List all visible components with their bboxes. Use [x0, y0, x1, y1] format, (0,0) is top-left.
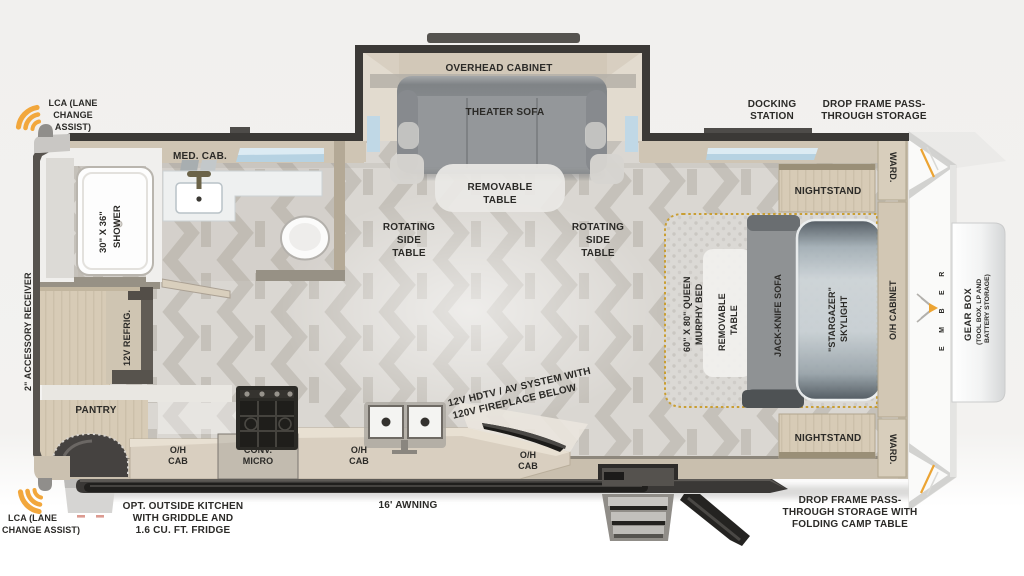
svg-text:GEAR BOX: GEAR BOX: [963, 288, 974, 341]
svg-text:TABLE: TABLE: [483, 195, 517, 206]
svg-text:THROUGH STORAGE WITH: THROUGH STORAGE WITH: [783, 507, 918, 518]
svg-text:60" X 80" QUEEN: 60" X 80" QUEEN: [682, 276, 692, 352]
svg-text:MURPHY BED: MURPHY BED: [694, 283, 704, 345]
svg-text:(TOOL BOX, LP AND: (TOOL BOX, LP AND: [976, 279, 983, 345]
svg-text:CAB: CAB: [168, 456, 188, 466]
svg-text:LCA (LANE: LCA (LANE: [48, 98, 97, 108]
svg-text:"STARGAZER": "STARGAZER": [827, 287, 837, 352]
svg-text:DOCKING: DOCKING: [748, 99, 797, 110]
svg-text:O/H: O/H: [170, 445, 186, 455]
svg-text:CHANGE ASSIST): CHANGE ASSIST): [2, 525, 80, 535]
svg-text:O/H CABINET: O/H CABINET: [888, 280, 898, 340]
svg-text:STATION: STATION: [750, 111, 794, 122]
svg-text:12V REFRIG.: 12V REFRIG.: [122, 310, 132, 366]
svg-text:SIDE: SIDE: [397, 235, 421, 246]
svg-text:O/H: O/H: [520, 450, 536, 460]
svg-text:O/H: O/H: [351, 445, 367, 455]
svg-text:DROP FRAME PASS-: DROP FRAME PASS-: [823, 99, 926, 110]
svg-text:OPT. OUTSIDE KITCHEN: OPT. OUTSIDE KITCHEN: [123, 501, 244, 512]
svg-text:WARD.: WARD.: [888, 152, 898, 183]
svg-text:REMOVABLE: REMOVABLE: [717, 293, 727, 351]
svg-text:WITH GRIDDLE AND: WITH GRIDDLE AND: [133, 513, 234, 524]
svg-text:WARD.: WARD.: [888, 434, 898, 465]
svg-text:16' AWNING: 16' AWNING: [378, 500, 437, 511]
svg-text:SHOWER: SHOWER: [112, 205, 123, 248]
svg-text:1.6 CU. FT. FRIDGE: 1.6 CU. FT. FRIDGE: [136, 525, 231, 536]
svg-text:REMOVABLE: REMOVABLE: [468, 182, 533, 193]
svg-text:BATTERY STORAGE): BATTERY STORAGE): [984, 274, 991, 343]
svg-text:ASSIST): ASSIST): [55, 122, 91, 132]
svg-text:SIDE: SIDE: [586, 235, 610, 246]
svg-text:CHANGE: CHANGE: [53, 110, 93, 120]
svg-text:CAB: CAB: [518, 461, 538, 471]
svg-text:TABLE: TABLE: [392, 248, 426, 259]
svg-text:LCA (LANE: LCA (LANE: [8, 513, 57, 523]
svg-text:FOLDING CAMP TABLE: FOLDING CAMP TABLE: [792, 519, 908, 530]
svg-text:THEATER SOFA: THEATER SOFA: [466, 107, 545, 118]
svg-text:ROTATING: ROTATING: [383, 222, 435, 233]
svg-text:ROTATING: ROTATING: [572, 222, 624, 233]
svg-text:SKYLIGHT: SKYLIGHT: [839, 295, 849, 342]
svg-text:TABLE: TABLE: [729, 305, 739, 335]
svg-text:2" ACCESSORY RECEIVER: 2" ACCESSORY RECEIVER: [23, 272, 33, 391]
svg-text:30" X 36": 30" X 36": [98, 211, 109, 253]
svg-text:MICRO: MICRO: [243, 456, 274, 466]
svg-text:DROP FRAME PASS-: DROP FRAME PASS-: [799, 495, 902, 506]
svg-text:PANTRY: PANTRY: [75, 405, 116, 416]
svg-text:OVERHEAD CABINET: OVERHEAD CABINET: [445, 63, 552, 74]
svg-text:EMBER: EMBER: [939, 258, 946, 351]
svg-text:CAB: CAB: [349, 456, 369, 466]
svg-text:JACK-KNIFE SOFA: JACK-KNIFE SOFA: [773, 274, 783, 357]
svg-text:THROUGH STORAGE: THROUGH STORAGE: [821, 111, 927, 122]
svg-text:NIGHTSTAND: NIGHTSTAND: [795, 186, 862, 197]
svg-text:NIGHTSTAND: NIGHTSTAND: [795, 433, 862, 444]
svg-text:TABLE: TABLE: [581, 248, 615, 259]
svg-text:MED. CAB.: MED. CAB.: [173, 151, 227, 162]
